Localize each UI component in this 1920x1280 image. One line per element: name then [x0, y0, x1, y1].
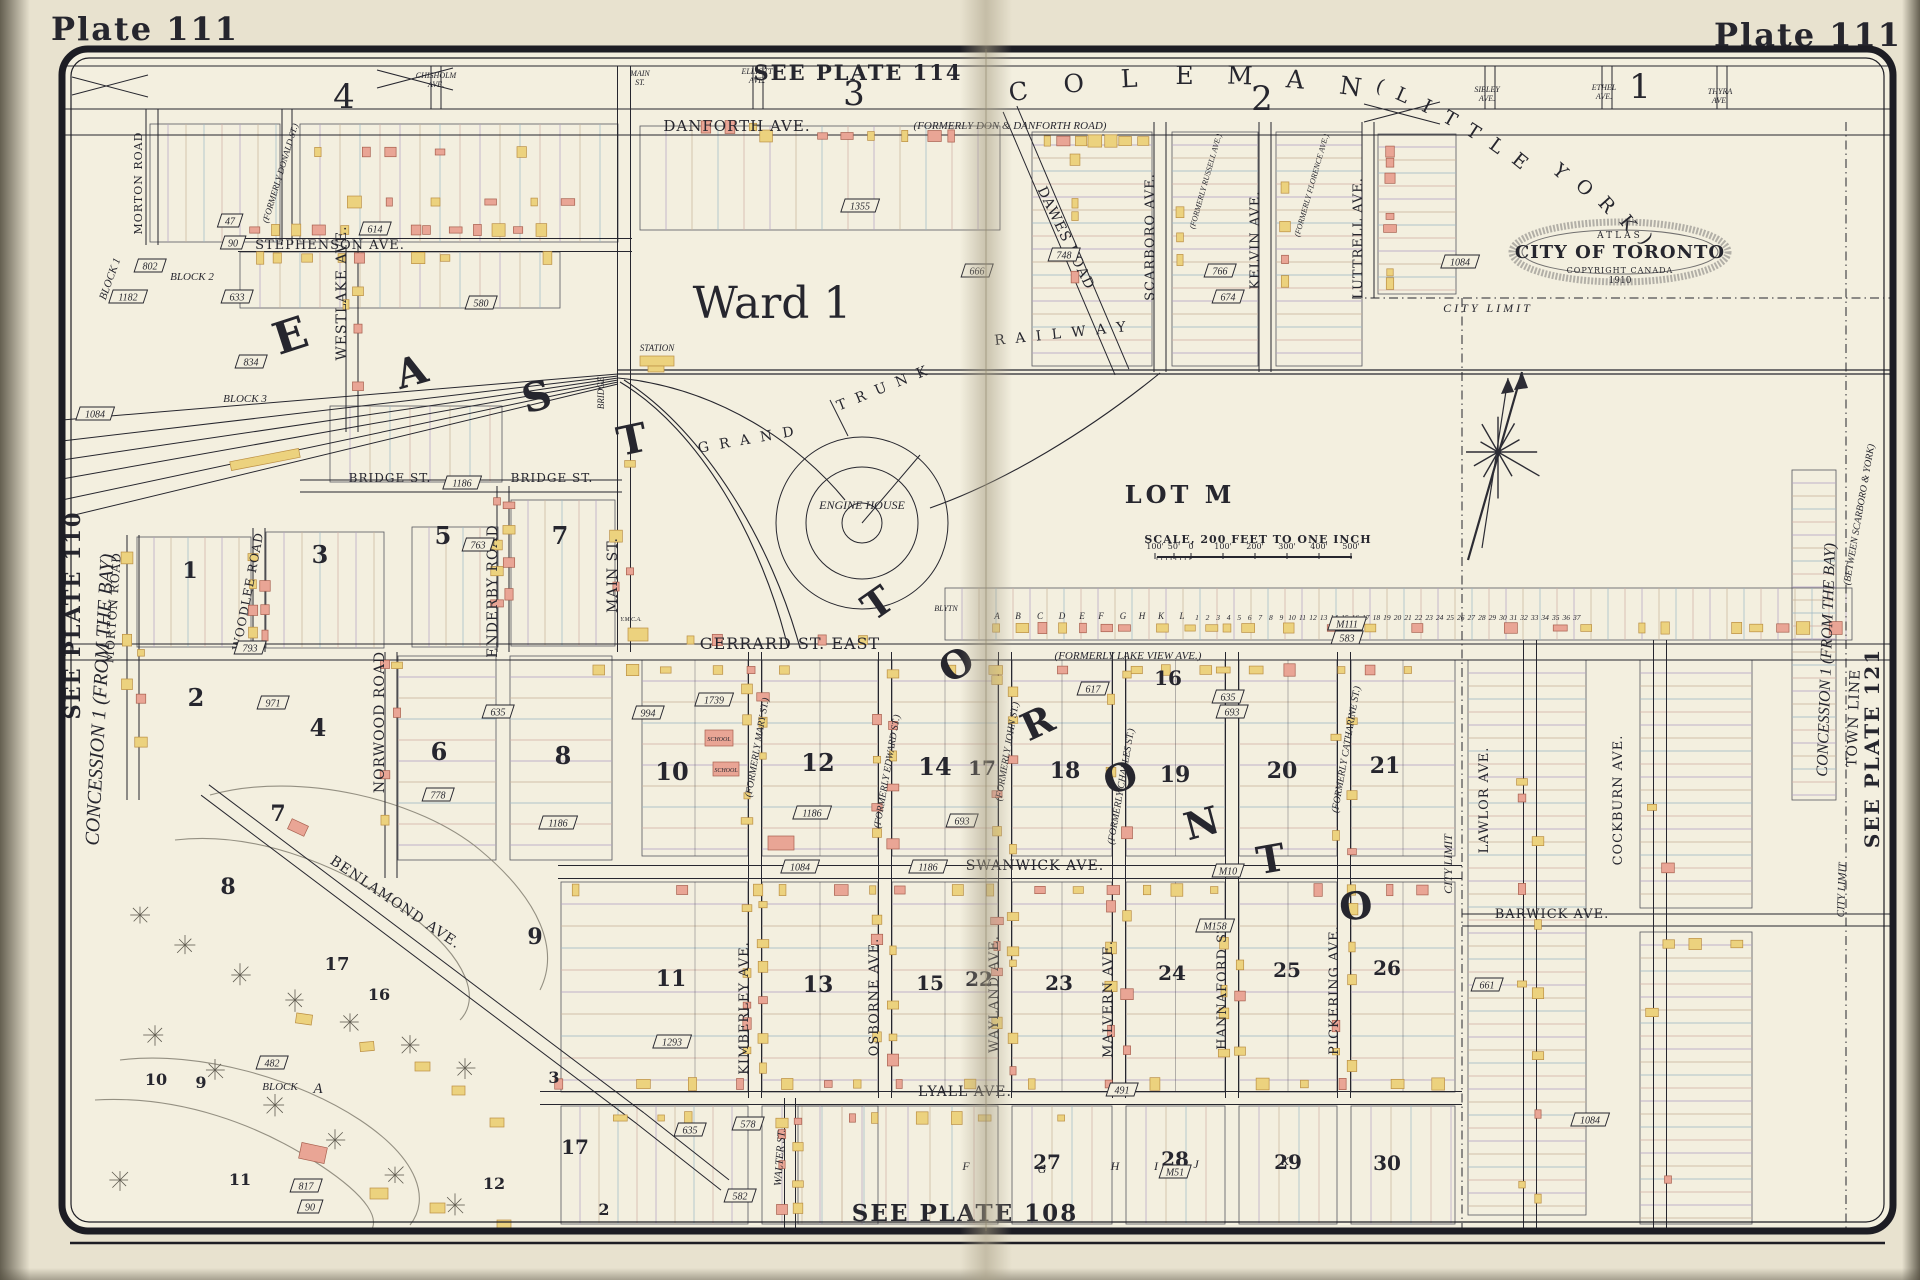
plan-marker-number: 1084 — [1450, 258, 1470, 269]
plan-marker-number: M158 — [1202, 922, 1226, 933]
building — [895, 886, 906, 894]
plan-marker-number: 482 — [265, 1059, 280, 1070]
building — [1058, 1115, 1065, 1121]
section-numeral: 4 — [333, 77, 355, 117]
building — [873, 714, 882, 724]
building — [423, 226, 431, 235]
street-name: MAIN ST. — [605, 537, 621, 613]
plan-marker-number: 778 — [431, 791, 446, 802]
building — [572, 884, 579, 896]
building — [250, 227, 260, 233]
map-annotation: BLOCK — [262, 1081, 298, 1093]
coleman-letter: N — [1338, 71, 1365, 103]
strip-lot-number: 30 — [1498, 613, 1507, 622]
building — [391, 662, 402, 668]
strip-lot-letter: F — [1097, 611, 1104, 621]
city-limit-label-right-edge: CITY LIMIT — [1835, 861, 1849, 917]
strip-lot-number: 23 — [1425, 613, 1433, 622]
building — [1517, 779, 1528, 786]
building — [834, 885, 848, 896]
strip-lot-number: 29 — [1489, 613, 1497, 622]
strip-lot-number: 13 — [1320, 613, 1328, 622]
building — [1689, 938, 1701, 949]
map-annotation: CITY LIMIT — [1441, 833, 1455, 894]
building — [1176, 207, 1184, 218]
building — [122, 634, 131, 646]
building — [1016, 623, 1029, 632]
block-number: 10 — [145, 1070, 167, 1089]
stamp-copyright: COPYRIGHT CANADA — [1567, 266, 1674, 275]
building — [353, 287, 364, 296]
building — [1314, 884, 1322, 897]
building — [1185, 625, 1195, 631]
building — [513, 227, 522, 234]
map-annotation: ST. — [635, 78, 645, 87]
building — [640, 356, 674, 366]
building — [713, 666, 723, 675]
building — [648, 366, 664, 372]
building — [452, 1086, 465, 1095]
building — [626, 568, 633, 575]
section-numeral: 2 — [1251, 79, 1273, 119]
block-number: 6 — [431, 737, 448, 766]
coleman-letter: A — [1284, 64, 1307, 95]
strip-lot-letter: K — [1157, 611, 1165, 621]
block-number: 30 — [1373, 1151, 1401, 1175]
strip-lot-number: 11 — [1299, 613, 1306, 622]
building — [1073, 887, 1083, 894]
building — [637, 1079, 651, 1088]
plan-number-marker: 580 — [465, 296, 497, 310]
block-number: 26 — [1373, 956, 1401, 980]
plan-marker-number: 793 — [243, 644, 258, 655]
building — [531, 198, 537, 206]
plan-marker-number: M10 — [1218, 867, 1237, 878]
building — [759, 901, 767, 907]
stamp-city-of-toronto: CITY OF TORONTO — [1515, 242, 1725, 263]
block-number: 7 — [270, 801, 285, 827]
plan-marker-number: 802 — [143, 262, 158, 273]
plan-marker-number: 635 — [683, 1126, 698, 1137]
building — [136, 694, 145, 703]
street-name: PICKERING AVE. — [1327, 925, 1342, 1055]
plan-number-marker: 582 — [724, 1189, 756, 1203]
building — [362, 147, 370, 157]
plan-marker-number: 766 — [1213, 267, 1228, 278]
plan-marker-number: 614 — [368, 225, 383, 236]
map-annotation: BLYTN — [934, 604, 958, 613]
plan-number-marker: 635 — [1212, 690, 1244, 704]
toronto-atlas-plate-111-map: ABCDEFGHKL123456789101112131415161718192… — [0, 0, 1920, 1280]
building — [896, 1080, 902, 1089]
building — [1105, 135, 1117, 147]
building — [1391, 1079, 1404, 1088]
map-annotation: SIBLEY — [1474, 85, 1501, 94]
plan-marker-number: 635 — [491, 708, 506, 719]
block-number: 7 — [552, 521, 569, 550]
plan-number-marker: 766 — [1204, 264, 1236, 278]
building — [870, 886, 876, 894]
building — [776, 1118, 788, 1128]
block-number: 16 — [1154, 666, 1182, 690]
building — [758, 961, 768, 972]
plan-number-marker: 90 — [297, 1200, 322, 1214]
street-name: KIMBERLEY AVE. — [737, 941, 752, 1075]
strip-lot-number: 28 — [1478, 613, 1486, 622]
building — [503, 502, 515, 509]
building — [1535, 1110, 1541, 1118]
map-annotation: SCHOOL — [714, 768, 738, 774]
building — [1535, 1194, 1541, 1203]
building — [1386, 158, 1394, 167]
strip-lot-number: 36 — [1562, 613, 1571, 622]
building — [737, 1079, 744, 1090]
plan-marker-number: 491 — [1115, 1086, 1130, 1097]
plan-marker-number: 617 — [1086, 685, 1102, 696]
building — [1517, 981, 1526, 987]
building — [517, 147, 526, 158]
plan-marker-number: 834 — [244, 358, 259, 369]
building — [741, 818, 753, 825]
strip-lot-letter: H — [1138, 611, 1146, 621]
plan-number-marker: 1186 — [909, 860, 948, 874]
strip-lot-number: 19 — [1383, 613, 1391, 622]
map-annotation: THYRA — [1708, 87, 1733, 96]
east-toronto-letter: O — [1337, 882, 1374, 930]
map-annotation: ENGINE HOUSE — [818, 498, 905, 512]
street-name: SCARBORO AVE. — [1143, 173, 1158, 301]
map-annotation: AVE. — [427, 80, 444, 89]
building — [503, 558, 514, 568]
map-annotation: J — [1193, 1157, 1199, 1171]
map-annotation: AVE. — [1478, 94, 1495, 103]
compass-center — [1495, 449, 1501, 455]
building — [747, 666, 755, 673]
building — [505, 589, 513, 600]
strip-lot-number: 1 — [1195, 613, 1199, 622]
building — [1532, 1052, 1543, 1060]
building — [742, 905, 752, 912]
building — [1663, 940, 1675, 948]
plan-marker-number: 1182 — [118, 293, 137, 304]
strip-lot-number: 8 — [1269, 613, 1273, 622]
building — [1404, 667, 1411, 674]
scale-tick-label: 500' — [1342, 542, 1359, 551]
building — [1119, 136, 1132, 145]
street-name: GERRARD ST. EAST — [700, 634, 880, 653]
plan-marker-number: 661 — [1480, 981, 1495, 992]
block-number: 15 — [916, 971, 944, 995]
building — [1150, 1078, 1160, 1091]
building — [449, 227, 462, 233]
plan-marker-number: 47 — [225, 217, 236, 228]
building — [1284, 664, 1295, 676]
building — [1143, 885, 1150, 894]
building — [256, 252, 263, 264]
building — [779, 666, 789, 674]
building — [887, 1054, 898, 1066]
scale-tick-label: 300' — [1278, 542, 1295, 551]
building — [347, 196, 361, 208]
street-name: KELVIN AVE. — [1248, 190, 1263, 289]
plan-number-marker: M158 — [1196, 919, 1235, 933]
building — [1504, 623, 1517, 634]
street-name: OSBORNE AVE. — [867, 938, 882, 1057]
building — [759, 997, 768, 1004]
block-number: 5 — [435, 521, 452, 550]
building — [1038, 622, 1047, 633]
building — [1072, 212, 1078, 221]
building — [626, 664, 638, 675]
building — [122, 679, 133, 690]
plan-number-marker: 1182 — [109, 290, 148, 304]
plan-marker-number: 578 — [741, 1120, 756, 1131]
map-annotation: LOT M — [1125, 480, 1236, 509]
town-line-label: TOWN LINE — [1844, 669, 1863, 768]
strip-lot-number: 18 — [1373, 613, 1381, 622]
building — [1348, 975, 1357, 985]
plan-number-marker: 482 — [256, 1056, 288, 1070]
building — [272, 224, 280, 235]
strip-lot-number: 9 — [1280, 613, 1284, 622]
strip-lot-number: 33 — [1530, 613, 1539, 622]
block-number: 4 — [310, 713, 327, 742]
building — [1750, 624, 1763, 632]
street-name: BRIDGE ST. — [511, 471, 594, 485]
strip-lot-number: 26 — [1457, 613, 1465, 622]
map-annotation: BLOCK 3 — [223, 393, 267, 405]
block-number: 27 — [1033, 1150, 1061, 1174]
building — [1210, 887, 1217, 894]
building — [1123, 1046, 1130, 1055]
building — [1731, 940, 1743, 948]
block-number: 18 — [1050, 758, 1081, 784]
block-number: 29 — [1274, 1150, 1302, 1174]
plan-number-marker: M111 — [1328, 617, 1367, 631]
building — [312, 225, 325, 235]
building — [135, 737, 148, 747]
building — [868, 132, 875, 141]
building — [1338, 667, 1345, 674]
block-number: 10 — [655, 757, 688, 786]
block-number: 12 — [801, 748, 834, 777]
coleman-letter: O — [1062, 68, 1086, 99]
street-name: COCKBURN AVE. — [1611, 735, 1626, 866]
building — [1300, 1080, 1308, 1088]
plan-number-marker: 578 — [732, 1117, 764, 1131]
plan-number-marker: 1084 — [1571, 1113, 1610, 1127]
strip-lot-letter: E — [1078, 611, 1085, 621]
plan-number-marker: 1293 — [653, 1035, 692, 1049]
building — [260, 581, 270, 592]
block-number: 21 — [1370, 753, 1401, 779]
map-annotation: BLOCK 2 — [170, 271, 214, 283]
plan-number-marker: 802 — [134, 259, 166, 273]
map-annotation: ELLIOTT — [740, 67, 773, 76]
building — [1123, 671, 1131, 678]
scale-tick-label: 100' — [1214, 542, 1231, 551]
building — [1553, 625, 1567, 631]
building — [1639, 623, 1645, 633]
building — [1387, 884, 1393, 895]
plan-number-marker: 748 — [1048, 248, 1080, 262]
building — [295, 1013, 312, 1025]
building — [138, 649, 145, 656]
building — [916, 1112, 928, 1124]
plan-marker-number: 633 — [230, 293, 245, 304]
building — [1059, 623, 1067, 633]
building — [354, 253, 364, 263]
building — [1365, 624, 1376, 632]
building — [1075, 136, 1086, 145]
building — [386, 198, 392, 206]
building — [292, 224, 301, 236]
photo-edge-left — [0, 0, 30, 1280]
strip-lot-letter: B — [1015, 611, 1021, 621]
plan-number-marker: 834 — [235, 355, 267, 369]
building — [1072, 199, 1078, 208]
building — [261, 605, 269, 615]
plate-number-left: Plate 111 — [51, 10, 239, 48]
building — [393, 708, 400, 717]
building — [431, 198, 440, 206]
building — [685, 1112, 693, 1125]
street-name: BRIDGE ST. — [349, 471, 432, 485]
strip-lot-letter: D — [1058, 611, 1066, 621]
building — [1236, 960, 1243, 970]
building — [1661, 622, 1669, 634]
map-annotation: AVE. — [1595, 92, 1612, 101]
plan-number-marker: M10 — [1212, 864, 1244, 878]
building — [1107, 901, 1116, 912]
building — [793, 1181, 804, 1187]
building — [1177, 254, 1183, 265]
strip-lot-letter: C — [1037, 611, 1044, 621]
plan-number-marker: 583 — [1331, 631, 1363, 645]
block-number: 20 — [1267, 758, 1298, 784]
building — [1057, 666, 1067, 674]
building — [1646, 1008, 1659, 1016]
strip-lot-letter: L — [1178, 611, 1184, 621]
plan-number-marker: 661 — [1471, 978, 1503, 992]
building — [1171, 884, 1183, 897]
plan-marker-number: 763 — [471, 541, 486, 552]
building — [1349, 942, 1355, 952]
plan-marker-number: 1186 — [452, 479, 471, 490]
building — [593, 665, 605, 675]
building — [370, 1188, 388, 1199]
scale-tick-label: 400' — [1310, 542, 1327, 551]
building — [1118, 625, 1130, 631]
strip-lot-number: 7 — [1258, 613, 1262, 622]
building — [849, 1114, 855, 1122]
building — [1331, 734, 1341, 740]
plan-marker-number: 674 — [1221, 293, 1236, 304]
scale-tick-label: 100' — [1146, 542, 1163, 551]
building — [853, 1080, 861, 1088]
building — [1385, 173, 1395, 183]
building — [688, 1078, 696, 1091]
plan-number-marker: 1084 — [781, 860, 820, 874]
building — [889, 1034, 897, 1041]
strip-lot-number: 22 — [1415, 613, 1423, 622]
block-number: 2 — [188, 683, 205, 712]
building — [1121, 989, 1134, 1000]
street-name: HANNAFORD ST. — [1215, 920, 1230, 1050]
building — [1417, 885, 1428, 895]
building — [315, 147, 321, 156]
strip-lot-number: 4 — [1227, 613, 1231, 622]
map-annotation: BRIDGE — [596, 376, 606, 409]
building — [687, 636, 694, 644]
map-annotation: STATION — [640, 343, 676, 353]
coleman-letter: E — [1175, 61, 1194, 90]
building — [536, 224, 547, 237]
plan-marker-number: 1084 — [85, 410, 105, 421]
street-name: BARWICK AVE. — [1495, 907, 1609, 922]
map-annotation: MAIN — [629, 69, 650, 78]
building — [490, 1118, 504, 1127]
map-annotation: AVE. — [748, 76, 765, 85]
building — [760, 1063, 767, 1073]
building — [758, 1034, 768, 1044]
street-name: MORTON ROAD — [132, 132, 145, 235]
building — [887, 670, 899, 678]
plan-number-marker: 1084 — [1441, 255, 1480, 269]
building — [1138, 137, 1149, 146]
plan-number-marker: 614 — [359, 222, 391, 236]
block-number: 23 — [1045, 971, 1073, 995]
building — [415, 1062, 430, 1071]
building — [677, 885, 688, 894]
scale-tick-label: 50' — [1168, 542, 1180, 551]
building — [1131, 666, 1142, 673]
photo-edge-right — [1902, 0, 1920, 1280]
plan-number-marker: 1186 — [793, 806, 832, 820]
building — [779, 884, 786, 895]
building — [411, 225, 421, 235]
map-annotation: (FORMERLY LAKE VIEW AVE.) — [1055, 650, 1202, 662]
plan-marker-number: M51 — [1165, 1168, 1184, 1179]
plan-number-marker: 793 — [234, 641, 266, 655]
strip-lot-number: 6 — [1248, 613, 1252, 622]
building — [1662, 863, 1675, 873]
block-number: 25 — [1273, 958, 1301, 982]
building — [1157, 624, 1169, 632]
building — [543, 252, 552, 265]
building — [871, 1113, 877, 1124]
building — [1581, 625, 1592, 632]
building — [381, 815, 389, 825]
building — [412, 252, 425, 263]
block-number: 11 — [229, 1170, 251, 1189]
building — [1333, 831, 1340, 841]
map-annotation: ETHEL — [1591, 83, 1617, 92]
strip-lot-number: 20 — [1394, 613, 1402, 622]
plan-marker-number: 971 — [266, 699, 281, 710]
block-number: 3 — [548, 1068, 559, 1087]
building — [1123, 911, 1132, 921]
building — [1107, 886, 1120, 895]
building — [435, 149, 445, 155]
building — [658, 1115, 665, 1121]
building — [1028, 1079, 1035, 1089]
see-plate-121: SEE PLATE 121 — [1860, 648, 1884, 848]
building — [824, 1081, 832, 1088]
plan-marker-number: 817 — [299, 1182, 315, 1193]
building — [1347, 1060, 1357, 1071]
building — [753, 884, 762, 896]
